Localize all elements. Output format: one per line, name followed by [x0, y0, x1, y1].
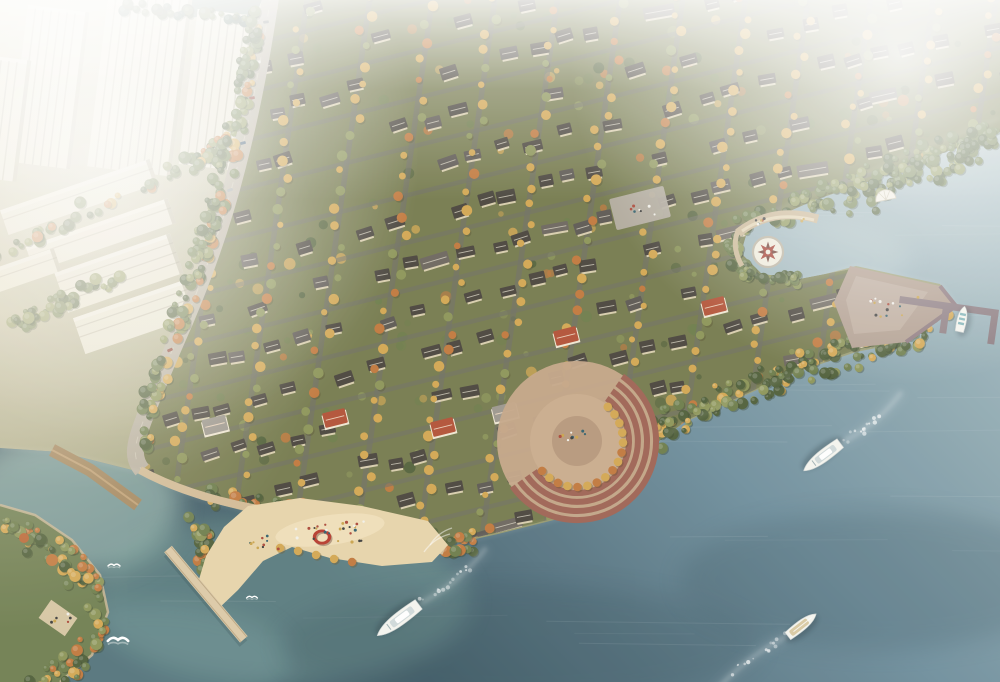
aerial-rendering: Aerial rendering of riverside villa comm…	[0, 0, 1000, 682]
atmospheric-haze	[0, 0, 1000, 682]
aerial-rendering-stage: Aerial rendering of riverside villa comm…	[0, 0, 1000, 682]
